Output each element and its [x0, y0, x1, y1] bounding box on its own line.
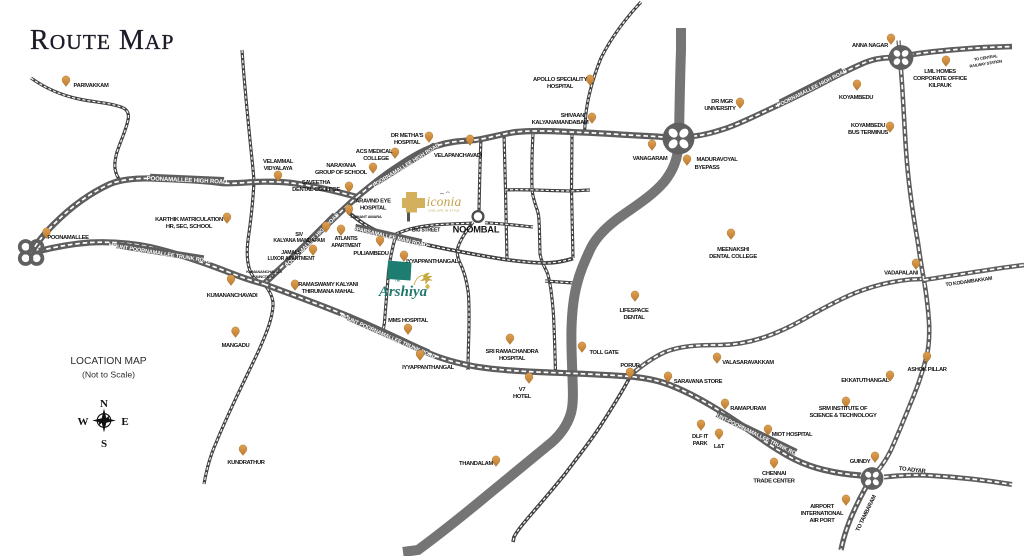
svg-text:MANGADU: MANGADU	[222, 343, 250, 349]
svg-text:HOTEL: HOTEL	[513, 394, 532, 400]
svg-text:SRM INSTITUTE OF: SRM INSTITUTE OF	[819, 406, 868, 412]
svg-text:ROUTE MAP: ROUTE MAP	[30, 25, 174, 56]
svg-text:KILPAUK: KILPAUK	[929, 83, 953, 89]
svg-text:LOCATION MAP: LOCATION MAP	[70, 356, 146, 367]
svg-text:BYEPASS: BYEPASS	[695, 165, 720, 171]
svg-text:DENTAL COLLEGE: DENTAL COLLEGE	[292, 187, 340, 193]
svg-text:VIDYALAYA: VIDYALAYA	[264, 166, 294, 172]
svg-text:PARIVAKKAM: PARIVAKKAM	[74, 83, 109, 89]
svg-text:ANNA NAGAR: ANNA NAGAR	[852, 43, 889, 49]
svg-text:W: W	[78, 416, 89, 428]
svg-text:JUNCTION: JUNCTION	[255, 274, 274, 279]
svg-text:SAVEETHA: SAVEETHA	[302, 180, 331, 186]
svg-text:SRI RAMACHANDRA: SRI RAMACHANDRA	[486, 349, 540, 355]
svg-text:PULIAMBEDU: PULIAMBEDU	[353, 251, 388, 257]
svg-text:HR, SEC, SCHOOL: HR, SEC, SCHOOL	[166, 224, 213, 230]
svg-text:TOLL GATE: TOLL GATE	[589, 350, 619, 356]
svg-text:PARK: PARK	[693, 441, 709, 447]
svg-text:N: N	[100, 398, 108, 410]
svg-text:NARAYANA: NARAYANA	[326, 163, 356, 169]
svg-text:HOSPITAL: HOSPITAL	[547, 84, 574, 90]
svg-text:MMS HOSPITAL: MMS HOSPITAL	[388, 318, 429, 324]
svg-text:TRADE CENTER: TRADE CENTER	[753, 479, 795, 485]
svg-text:HOSPITAL: HOSPITAL	[499, 356, 526, 362]
svg-text:UNIVERSITY: UNIVERSITY	[704, 106, 736, 112]
svg-text:DENTAL: DENTAL	[624, 315, 646, 321]
svg-text:E: E	[121, 416, 128, 428]
svg-text:(Not to Scale): (Not to Scale)	[82, 370, 135, 380]
svg-text:SHIVAANI: SHIVAANI	[561, 113, 586, 119]
svg-text:LML HOMES: LML HOMES	[924, 69, 956, 75]
svg-text:NOOMBAL: NOOMBAL	[453, 225, 500, 235]
svg-text:VANAGARAM: VANAGARAM	[633, 156, 668, 162]
svg-text:THANDALAM: THANDALAM	[459, 461, 493, 467]
svg-text:SARAVANA STORE: SARAVANA STORE	[674, 379, 723, 385]
svg-text:CORPORATE OFFICE: CORPORATE OFFICE	[913, 76, 967, 82]
svg-text:HOSPITAL: HOSPITAL	[360, 206, 387, 212]
svg-text:BIG STREET: BIG STREET	[412, 228, 441, 234]
svg-text:RAMAPURAM: RAMAPURAM	[730, 406, 766, 412]
svg-text:APARTMENT: APARTMENT	[331, 243, 362, 249]
svg-text:SCIENCE & TECHNOLOGY: SCIENCE & TECHNOLOGY	[809, 413, 877, 419]
svg-text:VELAMMAL: VELAMMAL	[263, 159, 294, 165]
svg-text:Arshiya: Arshiya	[378, 284, 428, 300]
svg-text:INTERNATIONAL: INTERNATIONAL	[801, 511, 844, 517]
svg-text:CHENNAI: CHENNAI	[762, 471, 787, 477]
svg-text:IYYAPPANTHANGAL: IYYAPPANTHANGAL	[402, 365, 455, 371]
svg-text:IYYAPPANTHANGAL: IYYAPPANTHANGAL	[406, 259, 459, 265]
svg-text:KUNDRATHUR: KUNDRATHUR	[227, 460, 265, 466]
svg-text:POONAMALLEE: POONAMALLEE	[47, 235, 89, 241]
svg-text:KOYAMBEDU: KOYAMBEDU	[839, 95, 873, 101]
svg-text:BUS TERMINUS: BUS TERMINUS	[848, 130, 888, 136]
svg-text:MIOT HOSPITAL: MIOT HOSPITAL	[772, 432, 813, 438]
svg-text:AIR PORT: AIR PORT	[810, 518, 836, 524]
svg-text:APOLLO SPECIALITY: APOLLO SPECIALITY	[533, 77, 587, 83]
svg-text:EKKATUTHANGAL: EKKATUTHANGAL	[841, 378, 889, 384]
svg-text:GROUP OF SCHOOL: GROUP OF SCHOOL	[315, 170, 368, 176]
svg-text:DLF IT: DLF IT	[692, 434, 709, 440]
svg-text:RAMASWAMY KALYANI: RAMASWAMY KALYANI	[298, 282, 358, 288]
svg-text:V7: V7	[519, 387, 526, 393]
svg-text:HOSPITAL: HOSPITAL	[394, 140, 421, 146]
svg-text:LUXOR APARTMENT: LUXOR APARTMENT	[267, 256, 315, 262]
svg-text:LML: LML	[395, 279, 401, 283]
svg-text:MEENAKSHI: MEENAKSHI	[717, 247, 749, 253]
svg-text:DENTAL COLLEGE: DENTAL COLLEGE	[709, 254, 757, 260]
svg-text:KOYAMBEDU: KOYAMBEDU	[851, 123, 885, 129]
svg-text:iconia: iconia	[427, 194, 462, 209]
svg-text:ATLANTIS: ATLANTIS	[335, 236, 359, 242]
svg-text:KALYANAMANDABAM: KALYANAMANDABAM	[532, 120, 589, 126]
svg-text:KUMANANCHAVADI: KUMANANCHAVADI	[207, 293, 258, 299]
svg-text:VADAPALANI: VADAPALANI	[884, 271, 918, 277]
svg-text:THIRUMANA MAHAL: THIRUMANA MAHAL	[302, 289, 355, 295]
svg-text:AIRPORT: AIRPORT	[810, 504, 834, 510]
svg-text:PORUR: PORUR	[620, 363, 640, 369]
svg-text:DR METHA'S: DR METHA'S	[391, 133, 424, 139]
svg-text:KARTHIK MATRICULATION: KARTHIK MATRICULATION	[155, 217, 223, 223]
svg-text:VELAPANCHAVADI: VELAPANCHAVADI	[434, 153, 483, 159]
svg-text:L&T: L&T	[714, 444, 725, 450]
svg-text:DR MGR: DR MGR	[711, 99, 734, 105]
svg-text:LIVE LIFE IN STYLE: LIVE LIFE IN STYLE	[428, 209, 459, 213]
svg-text:ARAVIND EYE: ARAVIND EYE	[355, 199, 391, 205]
svg-text:ARIHANT AMARA: ARIHANT AMARA	[350, 214, 382, 219]
svg-text:ASHOK PILLAR: ASHOK PILLAR	[907, 367, 947, 373]
svg-text:LIFESPACE: LIFESPACE	[620, 308, 649, 314]
svg-text:S: S	[101, 438, 107, 450]
svg-text:ACS MEDICAL: ACS MEDICAL	[356, 149, 393, 155]
svg-text:VALASARAVAKKAM: VALASARAVAKKAM	[722, 360, 774, 366]
svg-text:KALYANA MANDAPAM: KALYANA MANDAPAM	[273, 238, 324, 244]
svg-text:GUINDY: GUINDY	[850, 459, 871, 465]
svg-text:COLLEGE: COLLEGE	[363, 156, 389, 162]
svg-text:MADURAVOYAL: MADURAVOYAL	[697, 157, 739, 163]
